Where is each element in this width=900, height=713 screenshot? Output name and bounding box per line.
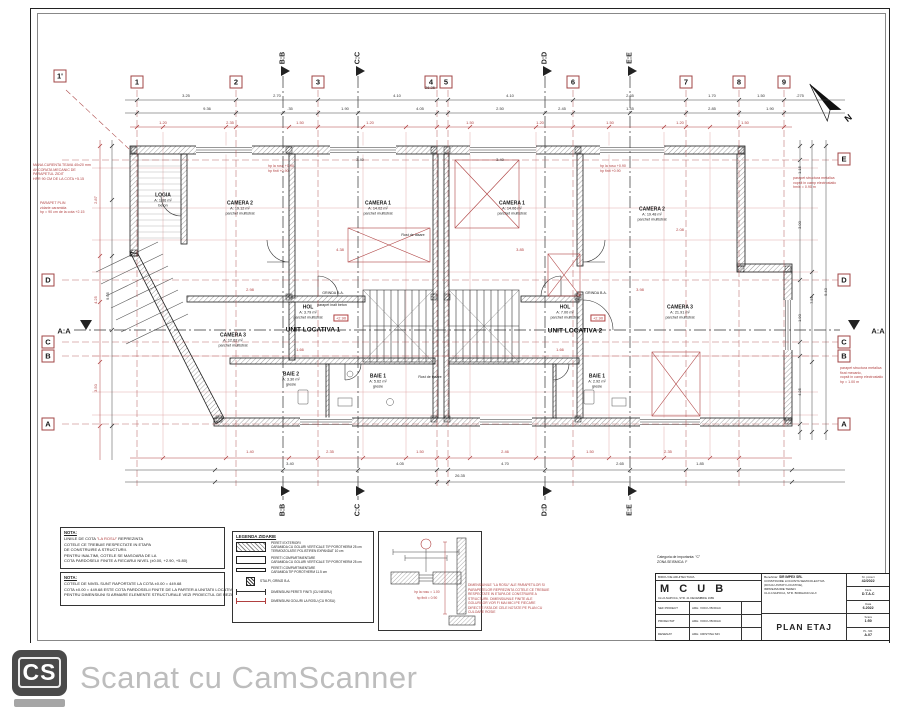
personnel-row: DESENATARH. CRISTINA SIN [656, 628, 761, 640]
signature-cell [742, 615, 761, 627]
note-line: COTA PARDOSELII FINITE A FIECARUI NIVEL … [64, 558, 221, 564]
meta-cell-data: Data6.2022 [847, 601, 889, 614]
scanned-floor-plan-page: 1'123456789EDCBADCBAB:BB:BC:CC:CD:DD:DE:… [0, 0, 900, 713]
detail-dim-red: hp la rosu = 1.00 [383, 590, 471, 594]
legend-swatch-dimr [236, 601, 266, 602]
title-block-project: Beneficiar: SIR IMPEX SRL CONSTRUIRE LOC… [762, 574, 847, 640]
meta-value: A.07 [847, 633, 889, 637]
legend-title: LEGENDA ZIDARIE [236, 534, 370, 539]
meta-value: 42/2022 [847, 579, 889, 583]
meta-value: D.T.A.C [847, 592, 889, 596]
project-description: CONSTRUIRE LOCUINTA SEMICOLECTIVA(DOUA U… [762, 580, 846, 614]
legend-item-text: PERETI EXTERIORICARAMIDA CU GOLURI VERTI… [271, 541, 362, 553]
legend-item-text: STALPI, GRINZI B.A. [260, 579, 290, 583]
sheet-title: PLAN ETAJ [762, 614, 846, 640]
title-block: BIROU DE ARHITECTURA M C U B CLUJ-NAPOCA… [655, 573, 890, 641]
camscanner-footer: CS Scanat cu CamScanner [0, 643, 900, 713]
personnel-name: ARH. VOICU BODAC [690, 602, 742, 614]
personnel-row: SEF PROIECTARH. VOICU BODAC [656, 602, 761, 615]
note-title: NOTA: [64, 575, 221, 580]
signature-cell [742, 628, 761, 640]
note-title: NOTA: [64, 530, 221, 535]
personnel-name: ARH. VOICU BODAC [690, 615, 742, 627]
red-note-line: CULOARE ROSIE [468, 610, 572, 615]
legend-item-text: PERETI COMPARTIMENTARECARAMIDA TIP POROT… [271, 566, 327, 574]
legend-item: PERETI COMPARTIMENTARECARAMIDA CU GOLURI… [236, 556, 370, 564]
legend-swatch-col [246, 577, 255, 586]
personnel-role: DESENAT [656, 628, 690, 640]
personnel-role: SEF PROIECT [656, 602, 690, 614]
project-description-line: CLUJ-NAPOCA, STR. BORHANCULUI [764, 592, 844, 596]
firm-type: BIROU DE ARHITECTURA [656, 574, 761, 581]
parapet-detail-drawing [379, 532, 483, 632]
cs-logo-letters: CS [18, 657, 62, 688]
legend-swatch-p11 [236, 568, 266, 572]
title-block-firm: BIROU DE ARHITECTURA M C U B CLUJ-NAPOCA… [656, 574, 762, 640]
title-block-meta: Nr. proiect42/2022FazaD.T.A.CData6.2022S… [847, 574, 889, 640]
legend-swatch-dimk [236, 591, 266, 592]
cs-logo-band [14, 699, 65, 707]
meta-cell-nr-proiect: Nr. proiect42/2022 [847, 574, 889, 587]
legend-item: PERETI COMPARTIMENTARECARAMIDA TIP POROT… [236, 566, 370, 574]
legend-item: DIMENSIUNI PERETI FINITI (CU NEGRU) [236, 588, 370, 595]
personnel-name: ARH. CRISTINA SIN [690, 628, 742, 640]
meta-cell-faza: FazaD.T.A.C [847, 587, 889, 600]
legend-swatch-p25 [236, 556, 266, 564]
detail-dim-red: hp finit = 0.90 [383, 596, 471, 600]
personnel-role: PROIECTAT [656, 615, 690, 627]
meta-value: 1:50 [847, 619, 889, 623]
firm-logo-text: M C U B [656, 581, 761, 596]
note-box-2: NOTA: COTELE DE NIVEL SUNT RAPORTATE LA … [60, 572, 225, 606]
legend-item: STALPI, GRINZI B.A. [236, 577, 370, 586]
camscanner-logo-icon: CS [12, 650, 67, 707]
camscanner-watermark-text: Scanat cu CamScanner [80, 660, 417, 696]
meta-cell-pl-nr-: PL. NR.A.07 [847, 628, 889, 640]
note-lines: COTELE DE NIVEL SUNT RAPORTATE LA COTA ±… [64, 581, 221, 598]
legend-item: PERETI EXTERIORICARAMIDA CU GOLURI VERTI… [236, 541, 370, 553]
legend-item-text: PERETI COMPARTIMENTARECARAMIDA CU GOLURI… [271, 556, 362, 564]
red-note-paragraph: DIMENSIUNILE "LA ROSU" ALE PARAPETILOR S… [468, 583, 572, 615]
note-line: PENTRU DIMENSIUNI SI ARMARE ELEMENTE STR… [64, 592, 221, 598]
meta-value: 6.2022 [847, 606, 889, 610]
note-lines: LINIILE DE COTA "LA ROSU" REPREZINTACOTE… [64, 536, 221, 564]
parapet-detail-box: hp la rosu = 1.00 hp finit = 0.90 [378, 531, 482, 631]
personnel-rows: SEF PROIECTARH. VOICU BODACPROIECTATARH.… [656, 602, 761, 640]
personnel-row: PROIECTATARH. VOICU BODAC [656, 615, 761, 628]
legend-item: DIMENSIUNI GOLURI LA ROSU (CU ROSU) [236, 598, 370, 605]
signature-cell [742, 602, 761, 614]
cs-logo-main: CS [12, 650, 67, 696]
seismic-zone: ZONA SEISMICA: F [657, 560, 700, 565]
wall-legend: LEGENDA ZIDARIE PERETI EXTERIORICARAMIDA… [232, 531, 374, 623]
legend-item-text: DIMENSIUNI GOLURI LA ROSU (CU ROSU) [271, 599, 335, 603]
legend-rows: PERETI EXTERIORICARAMIDA CU GOLURI VERTI… [236, 541, 370, 605]
note-box-1: NOTA: LINIILE DE COTA "LA ROSU" REPREZIN… [60, 527, 225, 569]
meta-cell-scara: Scara1:50 [847, 614, 889, 627]
legend-swatch-ext [236, 542, 266, 552]
title-block-header-lines: Categoria de importanta: "C" ZONA SEISMI… [657, 555, 700, 566]
legend-item-text: DIMENSIUNI PERETI FINITI (CU NEGRU) [271, 590, 332, 594]
